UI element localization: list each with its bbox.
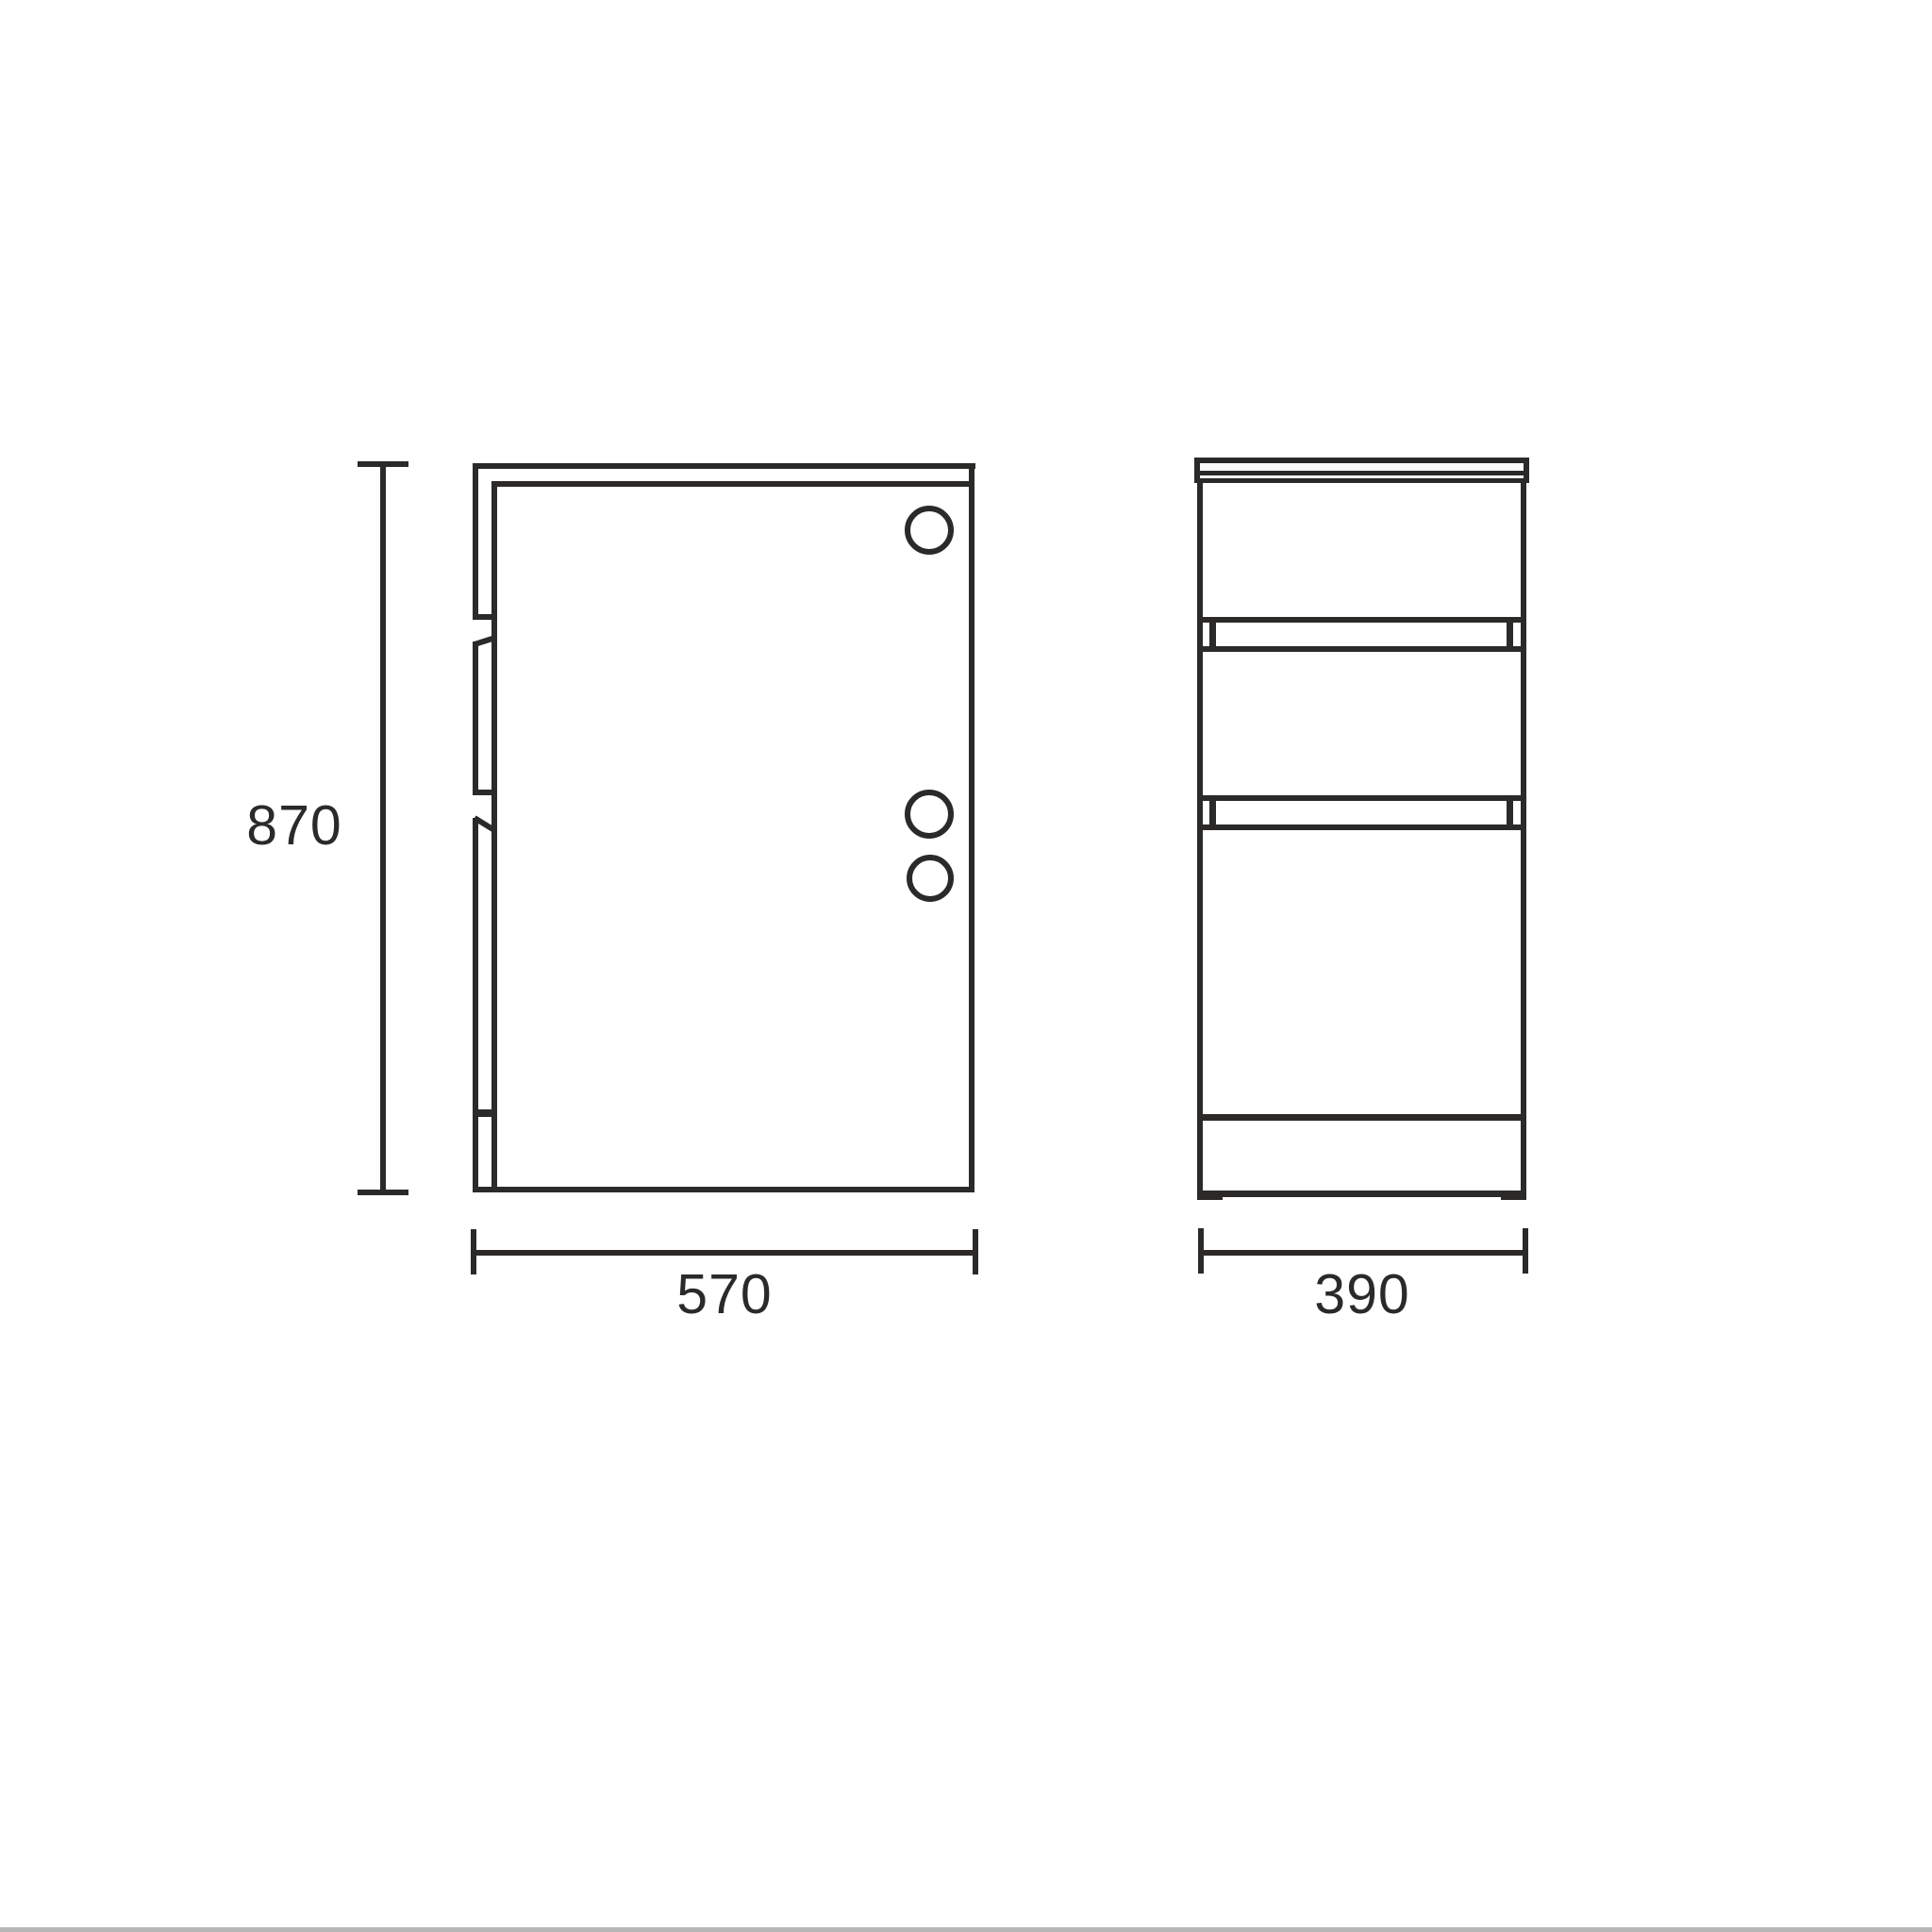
svg-text:870: 870 xyxy=(246,794,341,857)
svg-text:390: 390 xyxy=(1314,1263,1409,1325)
svg-text:570: 570 xyxy=(676,1263,772,1325)
